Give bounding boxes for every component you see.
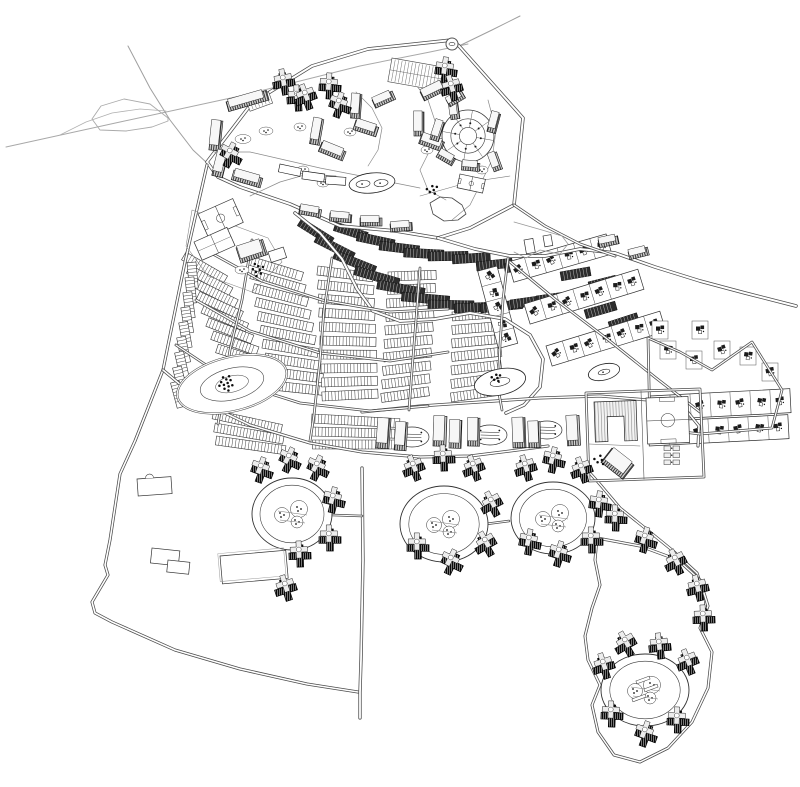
villa-block [583,297,587,301]
villa-block [616,287,619,290]
villa-dot [703,331,704,332]
tree-dot [225,378,228,381]
villa-block [776,428,779,431]
villa-block [694,355,698,359]
tower-core [280,75,285,80]
tower-core [642,533,647,538]
tower-core [448,81,453,86]
tower-core [296,547,301,552]
dot [554,425,556,427]
apartment-slab [414,111,424,136]
tower-core [336,98,341,103]
dot [428,148,430,150]
plaza-dot [460,124,462,126]
villa-block [749,352,753,356]
villa-block [721,350,725,354]
apartment-slab [360,216,382,226]
tower-core [440,451,445,456]
villa-block [635,325,639,329]
villa-block [746,356,750,360]
plaza-dot [469,122,471,124]
villa-dot [663,331,664,332]
apartment-slab [449,419,462,448]
apartment-slab [329,211,352,223]
plaza-dot [465,148,467,150]
tower-core [578,463,583,468]
tower-core [482,537,487,542]
tower-core [410,461,415,466]
villa-block [715,426,720,431]
dot [671,462,672,463]
garden-dot [296,506,298,508]
tower-core [326,531,331,536]
tree-dot [227,385,230,388]
turning-circle [446,38,458,50]
oval [235,266,249,274]
tower-core [596,497,601,502]
tree-dot [228,375,231,378]
villa-block [567,256,571,260]
slab-roof [433,415,445,441]
unit [664,453,671,458]
tree-dot [431,185,434,188]
slab-roof [467,417,477,441]
garden-dot [432,526,434,528]
tree-dot [226,382,229,385]
villa-plot [692,321,708,339]
garden-dot [647,695,649,697]
outline [543,235,553,247]
tree-dot [220,381,223,384]
garden-dot [556,527,558,529]
slab-facade [325,176,346,185]
planting-oval [235,266,249,274]
villa-block [535,265,539,269]
garden-dot [649,682,651,684]
oval [294,123,306,131]
garden-dot [449,520,451,522]
slab-roof [512,417,524,443]
apartment-slab [394,421,408,451]
tree-dot [601,459,604,462]
dot [299,128,301,130]
apartment-slab [512,417,526,448]
tower-core [326,79,331,84]
dot [351,130,353,132]
apartment-slab [461,160,480,172]
dot [322,184,324,186]
garden-dot [283,514,285,516]
strip-body [320,336,376,346]
villa-block [640,324,644,328]
slab-roof [376,417,389,443]
apartment-slab [390,220,413,232]
unit [673,460,680,465]
strip-body [321,376,377,387]
fan-rowhouses-ne-strip [320,336,376,346]
villa-block [661,326,665,330]
garden-dot [295,523,297,525]
dot [240,138,242,140]
fan-rowhouses-ne-strip [321,363,377,373]
villa-block [613,283,617,287]
garden-dot [446,529,448,531]
slab-roof [449,419,460,443]
unit [664,460,671,465]
villa-block [638,329,641,332]
garden-dot [431,522,433,524]
oval [235,135,251,144]
site-plan [0,0,800,787]
slab-roof [330,211,349,219]
dot [424,149,426,151]
dot [554,433,556,435]
outline [524,238,535,253]
unit [673,453,680,458]
tower-core [674,713,679,718]
dot [671,448,672,449]
villa-block [573,348,577,352]
tree-dot [227,389,230,392]
villa-block [778,422,782,426]
planting-oval [235,135,251,144]
plaza-dot [454,133,456,135]
planting-oval [259,127,273,135]
slab-roof [350,93,360,114]
tower-core [414,539,419,544]
tree-dot [257,265,260,268]
villa-plot [652,321,668,339]
tree-dot [593,458,596,461]
tree-dot [223,387,226,390]
tower-core [642,727,647,732]
tower-core [684,655,689,660]
tree-dot [495,374,498,377]
tree-dot [496,377,499,380]
apartment-slab [350,93,362,119]
oval [259,127,273,135]
dot [349,133,351,135]
tree-dot [432,189,435,192]
tree-dot [218,385,221,388]
villa-block [503,323,507,327]
tower-core [258,463,263,468]
tree-dot [493,378,496,381]
villa-block [719,405,723,409]
slab-roof [462,160,478,168]
outline [167,560,190,574]
strip-body [321,363,377,373]
tree-dot [254,263,257,266]
plaza-dot [474,146,476,148]
plaza-dot [456,142,458,144]
villa-block [659,331,662,334]
villa-block [762,398,766,402]
dot [265,132,267,134]
building-outline [543,235,553,247]
villa-block [631,282,635,286]
villa-block [701,326,705,330]
villa-block [722,400,726,404]
tree-dot [602,463,605,466]
villa-block [737,424,741,428]
tree-dot [252,268,255,271]
tree-dot [255,275,258,278]
tower-core [550,453,555,458]
fan-rowhouses-ne-strip [321,376,377,387]
villa-block [744,352,749,357]
slab-roof [390,220,409,228]
garden-dot [648,699,650,701]
dot [320,182,322,184]
dot [242,140,244,142]
villa-block [759,402,763,406]
garden-dot [294,519,296,521]
dot [426,151,428,153]
tree-dot [490,376,493,379]
garden-dot [452,518,454,520]
apartment-slab [528,421,541,448]
villa-block [738,403,742,407]
utility-units [664,446,680,465]
villa-block [607,333,611,337]
unit [664,446,671,451]
tower-core [448,555,453,560]
garden-dot [448,516,450,518]
garden-dot [632,688,634,690]
villa-block [739,398,743,402]
tower-core [556,547,561,552]
garden-dot [544,518,546,520]
dot [241,271,243,273]
garden-dot [540,516,542,518]
villa-plot [714,341,730,359]
garden-dot [297,510,299,512]
tower-core [330,493,335,498]
slab-roof [528,421,539,443]
service-building-2 [167,560,190,574]
tree-dot [599,455,602,458]
cluster-a-access [332,515,362,516]
apartment-slab [566,415,581,446]
dot [671,455,672,456]
tree-dot [259,269,262,272]
tree-dot [436,186,439,189]
slab-roof [394,421,406,445]
building-outline [524,238,535,253]
villa-block [490,291,494,295]
tower-core [608,707,613,712]
dot [420,441,422,443]
tower-core [700,611,705,616]
apartment-slab [376,417,391,448]
garden-dot [447,533,449,535]
garden-dot [435,524,437,526]
villa-block [495,292,499,296]
tower-core [488,497,493,502]
apartment-slab [433,415,447,446]
dot [239,269,241,271]
tower-core [442,63,447,68]
villa-block [666,350,670,354]
dot [420,432,422,434]
garden-dot [300,508,302,510]
garden-dot [557,510,559,512]
villa-block [717,400,722,405]
tree-dot [262,266,265,269]
tower-core [470,461,475,466]
tower-core [314,461,319,466]
tree-dot [429,191,432,194]
garden-dot [541,520,543,522]
tower-core [227,148,232,153]
villa-block [720,426,724,430]
slab-roof [361,216,379,223]
garden-dot [558,514,560,516]
tree-dot [260,272,263,275]
tower-core [282,581,287,586]
tower-core [286,453,291,458]
garden-dot [633,692,635,694]
villa-block [551,306,555,310]
tower-core [302,90,307,95]
dot [297,126,299,128]
tower-core [526,535,531,540]
tower-core [522,461,527,466]
dot [263,130,265,132]
apartment-slab [325,176,346,185]
tower-core [672,555,677,560]
tree-dot [255,271,258,274]
villa-block [656,327,660,331]
dot [304,168,306,170]
cul-de-sac [446,38,458,50]
dot [483,168,485,170]
villa-block [618,282,622,286]
villa-block [696,327,700,331]
garden-dot [636,690,638,692]
dot [244,137,246,139]
plaza-dot [480,137,482,139]
dot [301,125,303,127]
tree-dot [229,379,232,382]
dot [267,129,269,131]
tower-core [612,511,617,516]
unit [673,446,680,451]
tree-dot [222,376,225,379]
tower-core [600,659,605,664]
dot [480,439,482,441]
villa-block [699,331,702,334]
tree-dot [434,192,437,195]
garden-dot [279,512,281,514]
dot [347,131,349,133]
dot [498,439,500,441]
tower-core [622,637,627,642]
tower-core [656,639,661,644]
slab-roof [414,111,422,131]
planting-oval [294,123,306,131]
house-body [137,477,172,496]
tower-core [694,581,699,586]
dot [243,268,245,270]
apartment-slab [467,417,480,446]
villa-block [585,291,589,295]
garden-dot [280,516,282,518]
tower-core [588,533,593,538]
campus-soccer-field [646,397,690,444]
garden-dot [555,523,557,525]
tree-dot [426,188,429,191]
dot [481,171,483,173]
site-plan-svg [0,0,800,787]
dot [498,430,500,432]
plaza-dot [478,128,480,130]
tree-dot [231,384,234,387]
tree-dot [497,380,500,383]
tree-dot [223,384,226,387]
tree-dot [596,461,599,464]
slab-roof [566,415,578,441]
garden-dot [561,512,563,514]
tree-dot [499,374,502,377]
